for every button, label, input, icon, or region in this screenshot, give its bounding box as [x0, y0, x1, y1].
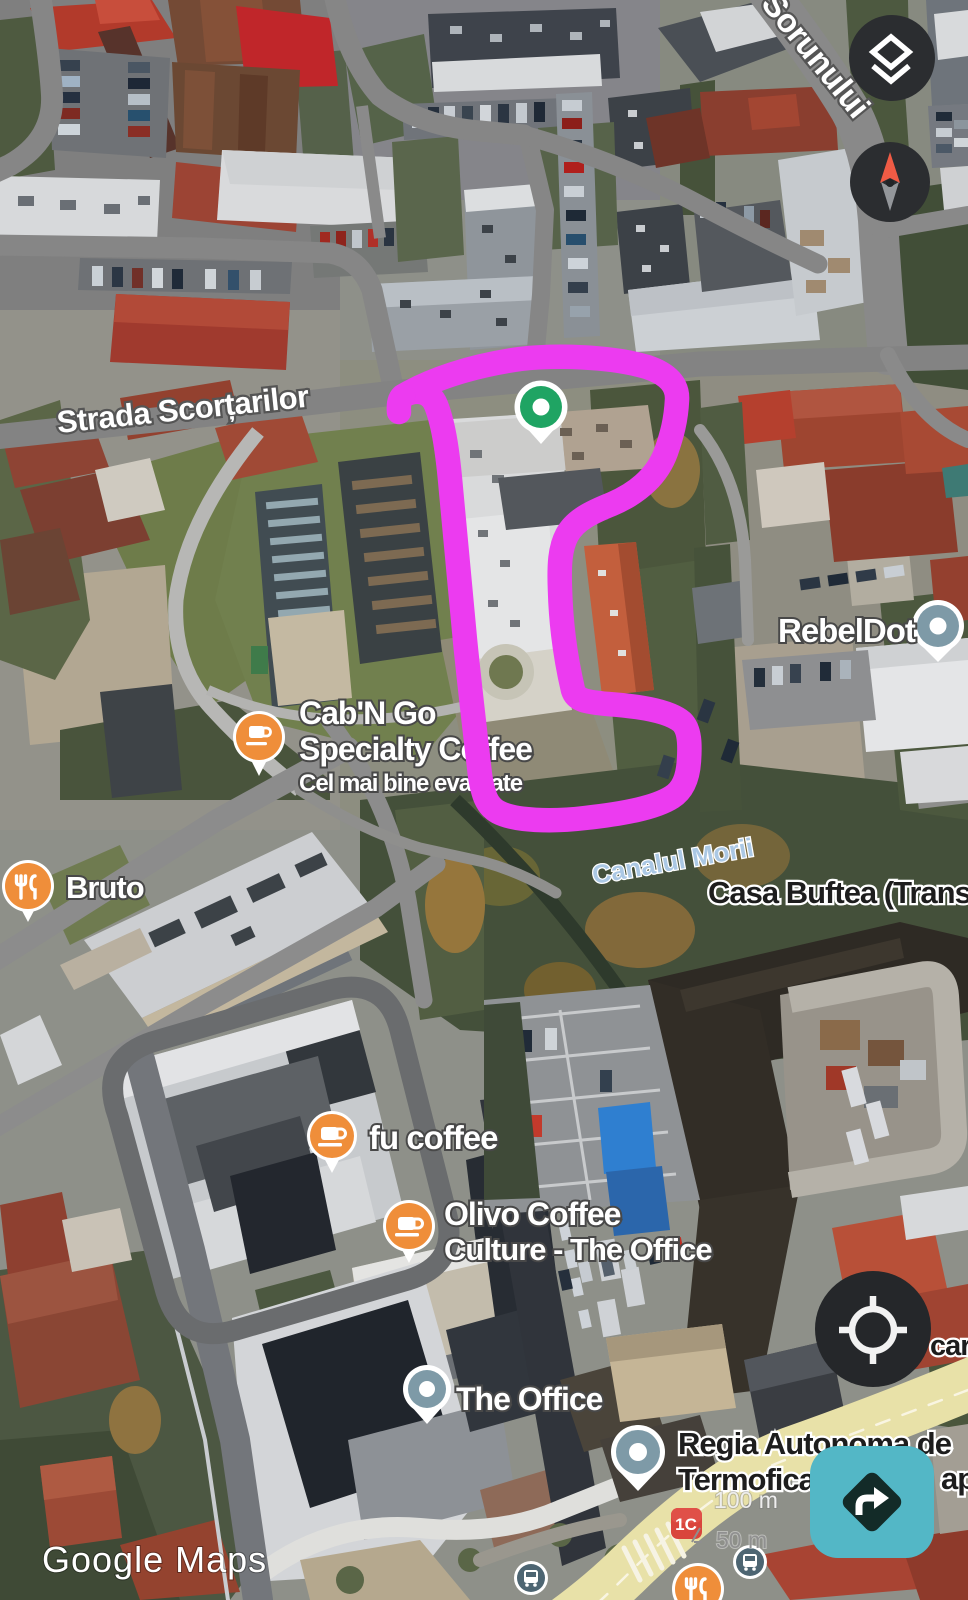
svg-text:1C: 1C [675, 1515, 697, 1534]
svg-text:RebelDot: RebelDot [778, 612, 916, 649]
svg-text:fu coffee: fu coffee [369, 1119, 498, 1156]
svg-text:Culture - The Office: Culture - The Office [444, 1232, 712, 1267]
svg-text:Bruto: Bruto [66, 870, 144, 905]
svg-text:Specialty Coffee: Specialty Coffee [299, 731, 532, 767]
svg-text:Casa Buftea (Transg: Casa Buftea (Transg [708, 875, 968, 910]
svg-text:100 m: 100 m [714, 1487, 778, 1513]
svg-text:Cab'N Go: Cab'N Go [299, 695, 436, 731]
svg-text:50 m: 50 m [716, 1527, 767, 1553]
svg-text:Google Maps: Google Maps [42, 1539, 267, 1580]
svg-text:apo: apo [941, 1461, 968, 1496]
svg-text:The Office: The Office [456, 1381, 603, 1417]
svg-text:car: car [930, 1330, 968, 1362]
svg-text:Olivo Coffee: Olivo Coffee [444, 1196, 621, 1232]
